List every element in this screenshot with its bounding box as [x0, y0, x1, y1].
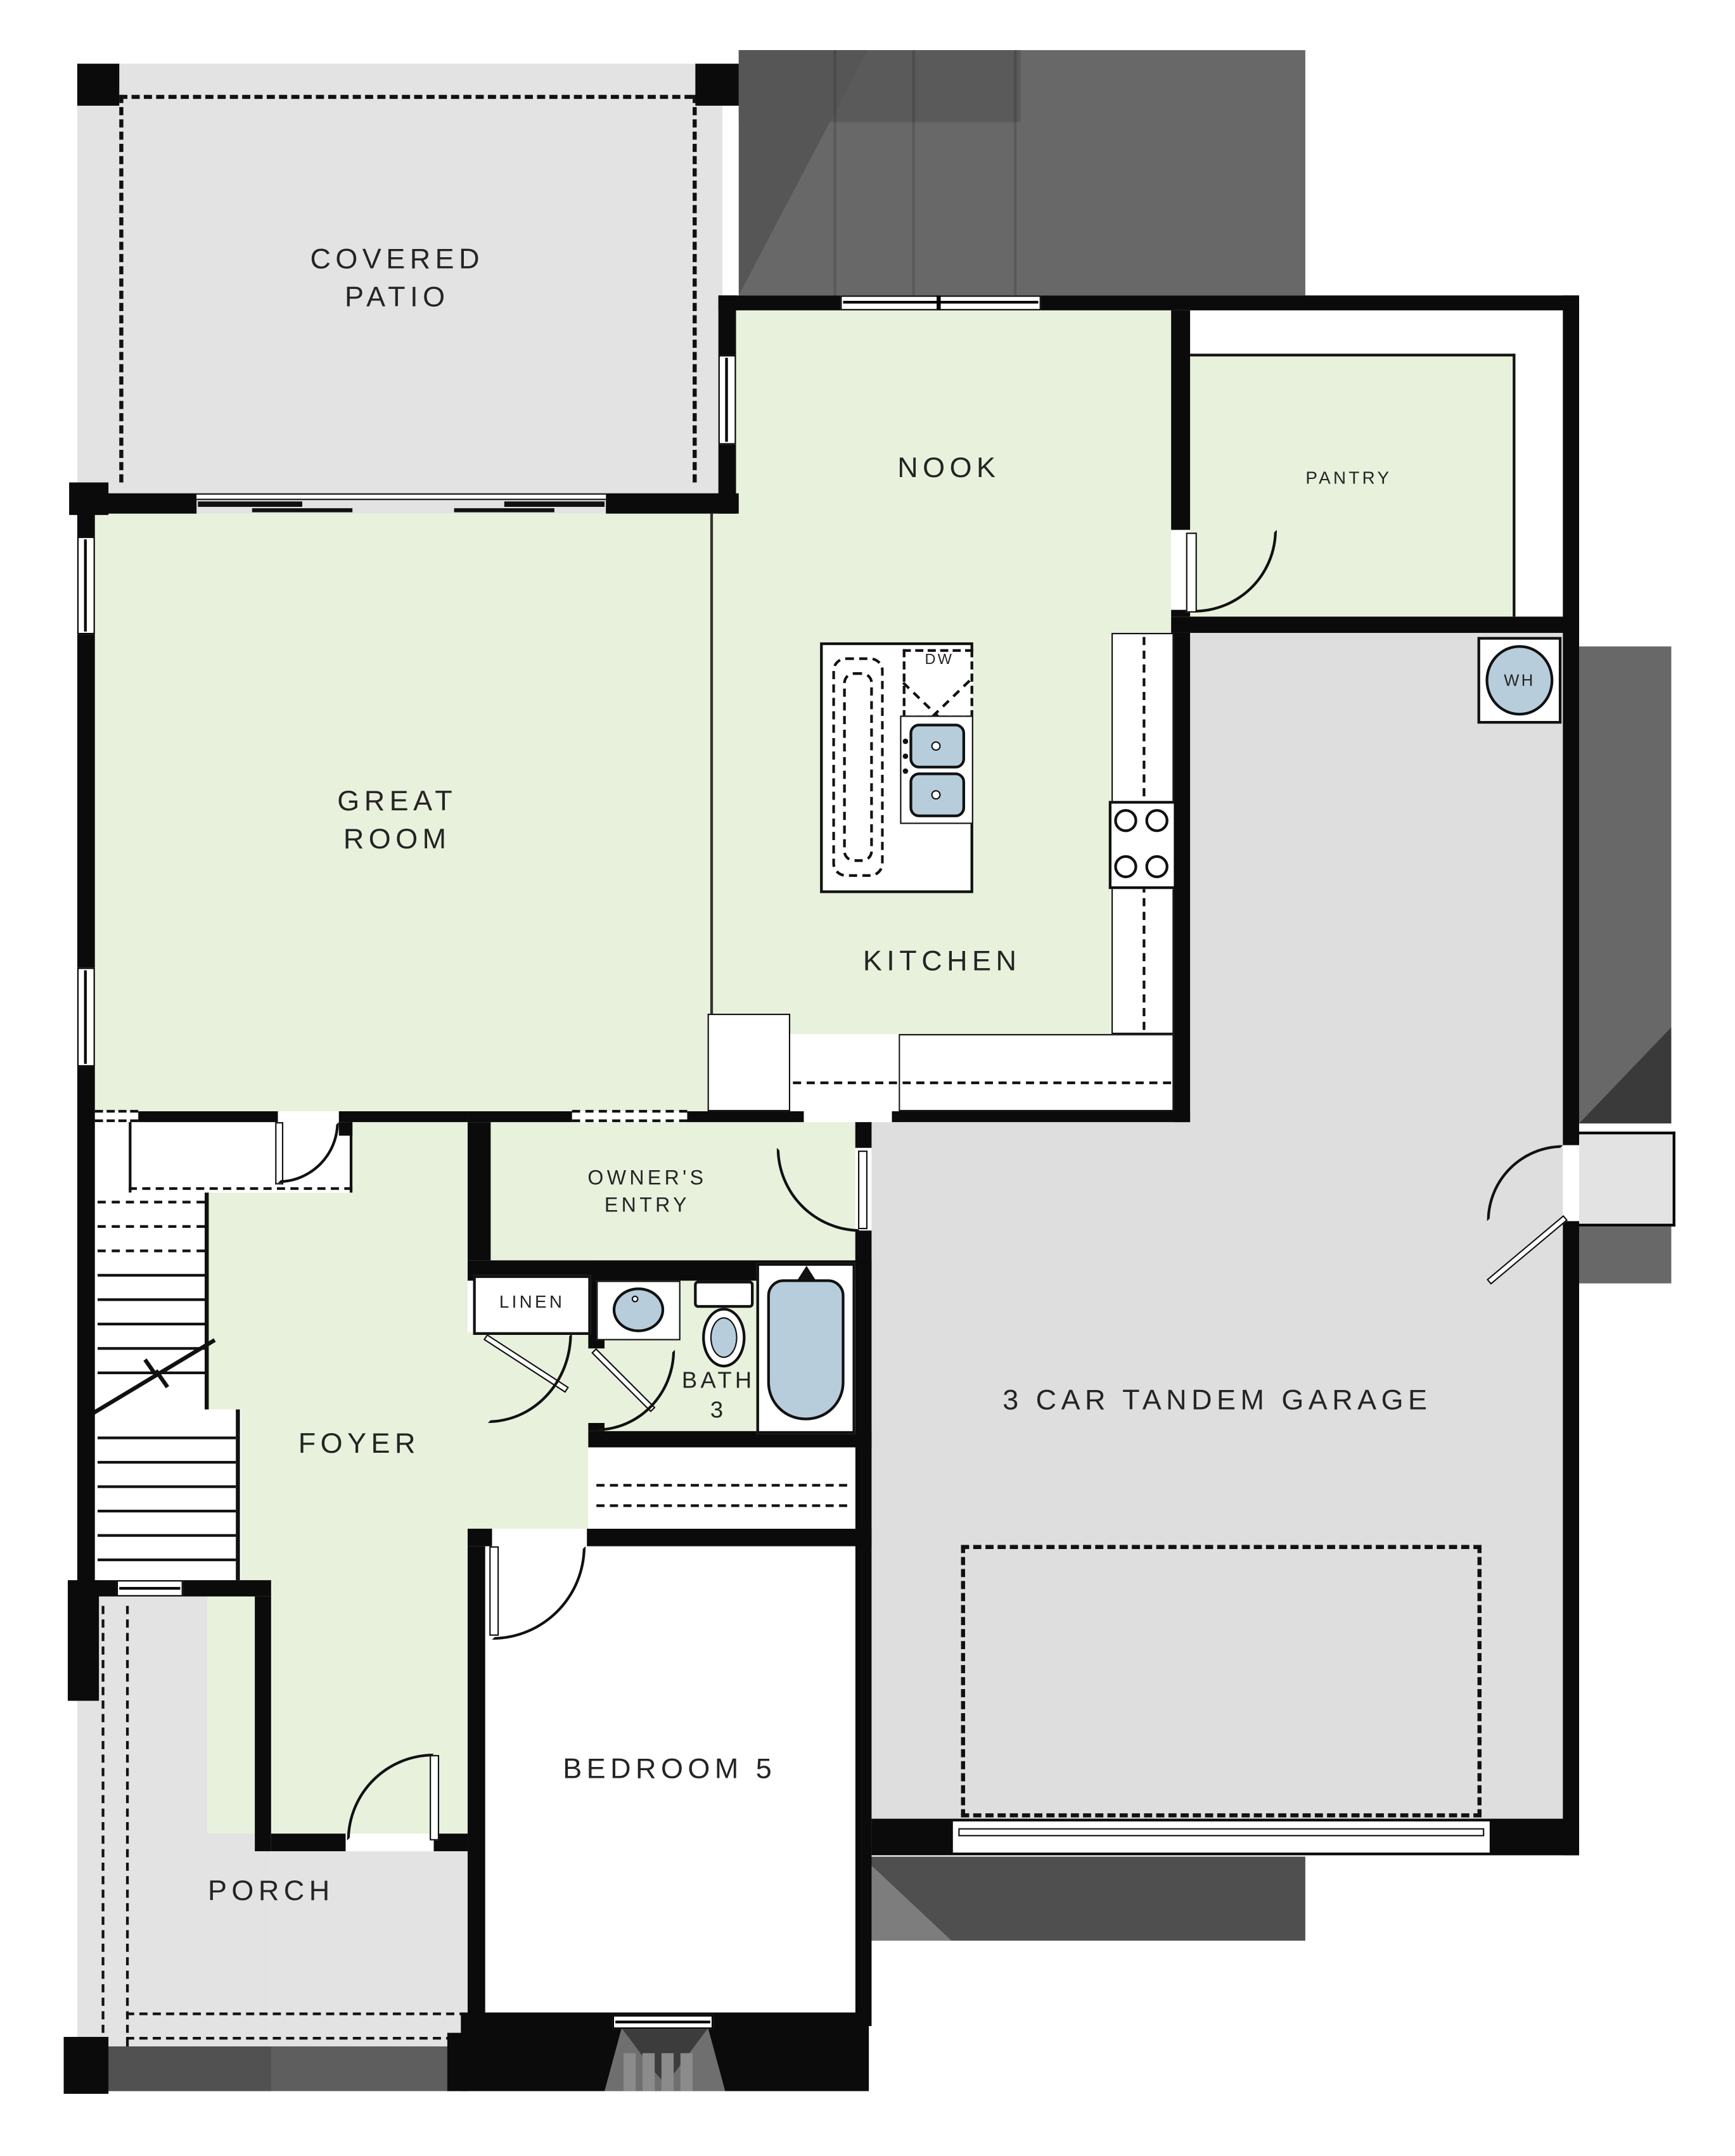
wall-top-right — [1041, 295, 1579, 310]
sink-knob-1 — [903, 739, 909, 744]
water-heater-label: WH — [1485, 671, 1553, 692]
label-great-room: GREAT ROOM — [262, 783, 533, 858]
stair-tread-11 — [98, 1559, 236, 1561]
great-room-window-1-line — [84, 539, 87, 631]
wall-right-upper — [1563, 295, 1579, 1145]
wall-left-seg3 — [77, 1066, 95, 1596]
roof-seam-2 — [912, 50, 915, 295]
label-garage: 3 CAR TANDEM GARAGE — [878, 1382, 1556, 1420]
bathtub — [767, 1279, 845, 1420]
wall-right-lower — [1563, 1221, 1579, 1855]
garage-door-panel — [958, 1828, 1484, 1837]
sink-knob-2 — [903, 753, 909, 759]
flooring-divider-line — [710, 514, 713, 1034]
kitchen-cabinet-dash-bottom — [793, 1081, 1171, 1084]
sink-knob-3 — [903, 769, 909, 774]
porch-dashed-bottom-inner — [126, 2037, 468, 2039]
stair-rail-upper — [205, 1192, 208, 1409]
wall-kitchen-right — [1174, 633, 1190, 1122]
wall-entry-right-seg1 — [855, 1122, 872, 1148]
wall-entry-left — [468, 1122, 490, 1260]
closet-dashed-bottom — [129, 1187, 352, 1190]
stair-tread-3 — [98, 1323, 205, 1325]
porch-dashed-left-inner — [126, 1606, 129, 2046]
bay-post-1 — [624, 2053, 636, 2091]
wall-top-nook-left — [719, 295, 841, 310]
stair-tread-dashed-3 — [98, 1249, 205, 1252]
opening-dashed-stair-top — [95, 1110, 138, 1113]
kitchen-counter-bottom — [899, 1034, 1174, 1111]
bath-sink-drain — [632, 1296, 639, 1303]
great-room-window-2-line — [84, 971, 87, 1064]
stair-tread-5 — [98, 1372, 205, 1374]
wall-a-seg1 — [468, 1111, 572, 1122]
wall-greatroom-bottom-seg1 — [138, 1111, 278, 1122]
wall-pantry-bottom — [1171, 616, 1579, 633]
slider-panel-3 — [454, 508, 554, 512]
foyer-floor-right — [352, 1122, 468, 1834]
kitchen-counter-return — [708, 1014, 790, 1111]
cooktop-burner-2 — [1146, 809, 1168, 832]
opening-dashed-hall-top — [572, 1110, 688, 1113]
bay-post-3 — [662, 2053, 674, 2091]
roof-seam-3 — [1014, 50, 1016, 295]
wall-patio-bottom-left — [77, 494, 196, 514]
slider-panel-4 — [504, 501, 605, 507]
label-owners-entry: OWNER'S ENTRY — [535, 1166, 759, 1220]
label-bedroom5: BEDROOM 5 — [534, 1751, 805, 1789]
roof-below-stoop — [1579, 1227, 1671, 1284]
toilet-tank — [694, 1280, 753, 1308]
patio-dashed-right — [693, 95, 696, 483]
slider-sill — [196, 494, 606, 501]
tandem-parking-dashed — [961, 1545, 1482, 1818]
label-linen: LINEN — [477, 1290, 587, 1313]
stair-tread-1 — [98, 1274, 205, 1277]
stair-rail-lower — [236, 1410, 240, 1581]
wall-bedroom-top-seg1 — [468, 1529, 492, 1547]
wall-left-seg2 — [77, 634, 95, 967]
wall-greatroom-bottom-seg2 — [339, 1111, 468, 1122]
bedroom-vestibule — [588, 1448, 855, 1529]
stair-tread-4 — [98, 1347, 205, 1349]
stair-tread-9 — [98, 1510, 236, 1512]
stair-tread-dashed-1 — [98, 1201, 205, 1203]
patio-post-top-right — [695, 64, 738, 106]
roof-seam-1 — [834, 50, 836, 295]
stair-tread-10 — [98, 1534, 236, 1536]
stair-tread-dashed-2 — [98, 1225, 205, 1228]
vestibule-dashed-2 — [596, 1504, 847, 1507]
porch-dashed-left-outer — [101, 1606, 104, 2046]
patio-post-top-left — [77, 64, 119, 106]
cooktop-burner-1 — [1114, 809, 1137, 832]
opening-dashed-hall-bottom — [572, 1119, 688, 1122]
wall-bedroom-top-seg2 — [587, 1529, 871, 1547]
label-foyer: FOYER — [278, 1426, 441, 1463]
cooktop-burner-4 — [1146, 855, 1168, 878]
label-kitchen: KITCHEN — [813, 943, 1070, 981]
wall-nook-left-seg1 — [719, 295, 736, 355]
label-porch: PORCH — [196, 1873, 345, 1910]
garage-door-opening — [953, 1821, 1490, 1853]
wall-stair-bottom-seg2 — [183, 1580, 271, 1597]
wall-foyer-porch-left — [255, 1597, 271, 1851]
wall-stair-bottom-seg1 — [77, 1580, 117, 1597]
wall-pantry-left-upper — [1171, 310, 1190, 530]
bay-post-2 — [643, 2053, 655, 2091]
dishwasher-label: DW — [908, 651, 970, 670]
wall-foyer-front-seg1 — [271, 1834, 346, 1851]
porch-dashed-bottom-outer — [126, 2013, 468, 2015]
label-pantry: PANTRY — [1260, 466, 1437, 490]
label-nook: NOOK — [867, 450, 1030, 487]
nook-window-mullion — [937, 295, 940, 310]
island-inner-dashed-inner — [843, 672, 873, 862]
bedroom-window-line — [615, 2020, 710, 2023]
cooktop-burner-3 — [1114, 855, 1137, 878]
garage-side-door-opening — [1563, 1145, 1579, 1222]
garage-side-stoop — [1579, 1132, 1675, 1227]
opening-dashed-stair-bottom — [95, 1119, 138, 1122]
floor-plan: DW — [0, 0, 1735, 2156]
kitchen-walkway — [790, 1034, 899, 1122]
vestibule-dashed-1 — [596, 1484, 847, 1486]
slider-panel-1 — [198, 501, 302, 507]
bath-sink-bowl — [613, 1287, 664, 1332]
wall-entry-right-seg2 — [855, 1230, 872, 2026]
stair-tread-7 — [98, 1461, 236, 1464]
stair-tread-8 — [98, 1485, 236, 1488]
stair-landing-window-line — [119, 1587, 180, 1590]
wall-a-seg2 — [688, 1111, 804, 1122]
wall-bedroom-left — [468, 1547, 485, 2026]
bay-post-4 — [681, 2053, 693, 2091]
patio-dashed-left — [119, 95, 123, 483]
stair-tread-6 — [98, 1436, 236, 1439]
label-bath3: BATH 3 — [667, 1366, 770, 1427]
porch-post-bottom-left — [64, 2037, 109, 2094]
stair-tread-2 — [98, 1298, 205, 1301]
wall-a-seg3 — [892, 1111, 1191, 1122]
toilet-bowl-inner — [710, 1317, 738, 1358]
sink-drain-2 — [932, 790, 941, 800]
patio-dashed-top — [119, 95, 693, 99]
porch-pier-top-left — [68, 1580, 99, 1700]
stairs-lower-flight — [95, 1410, 241, 1581]
closet-door-jamb — [339, 1122, 352, 1135]
label-covered-patio: COVERED PATIO — [234, 241, 560, 317]
sink-drain-1 — [932, 741, 941, 751]
nook-left-window-line — [725, 358, 727, 442]
wall-nook-left-seg2 — [719, 445, 736, 514]
slider-panel-2 — [252, 508, 352, 512]
